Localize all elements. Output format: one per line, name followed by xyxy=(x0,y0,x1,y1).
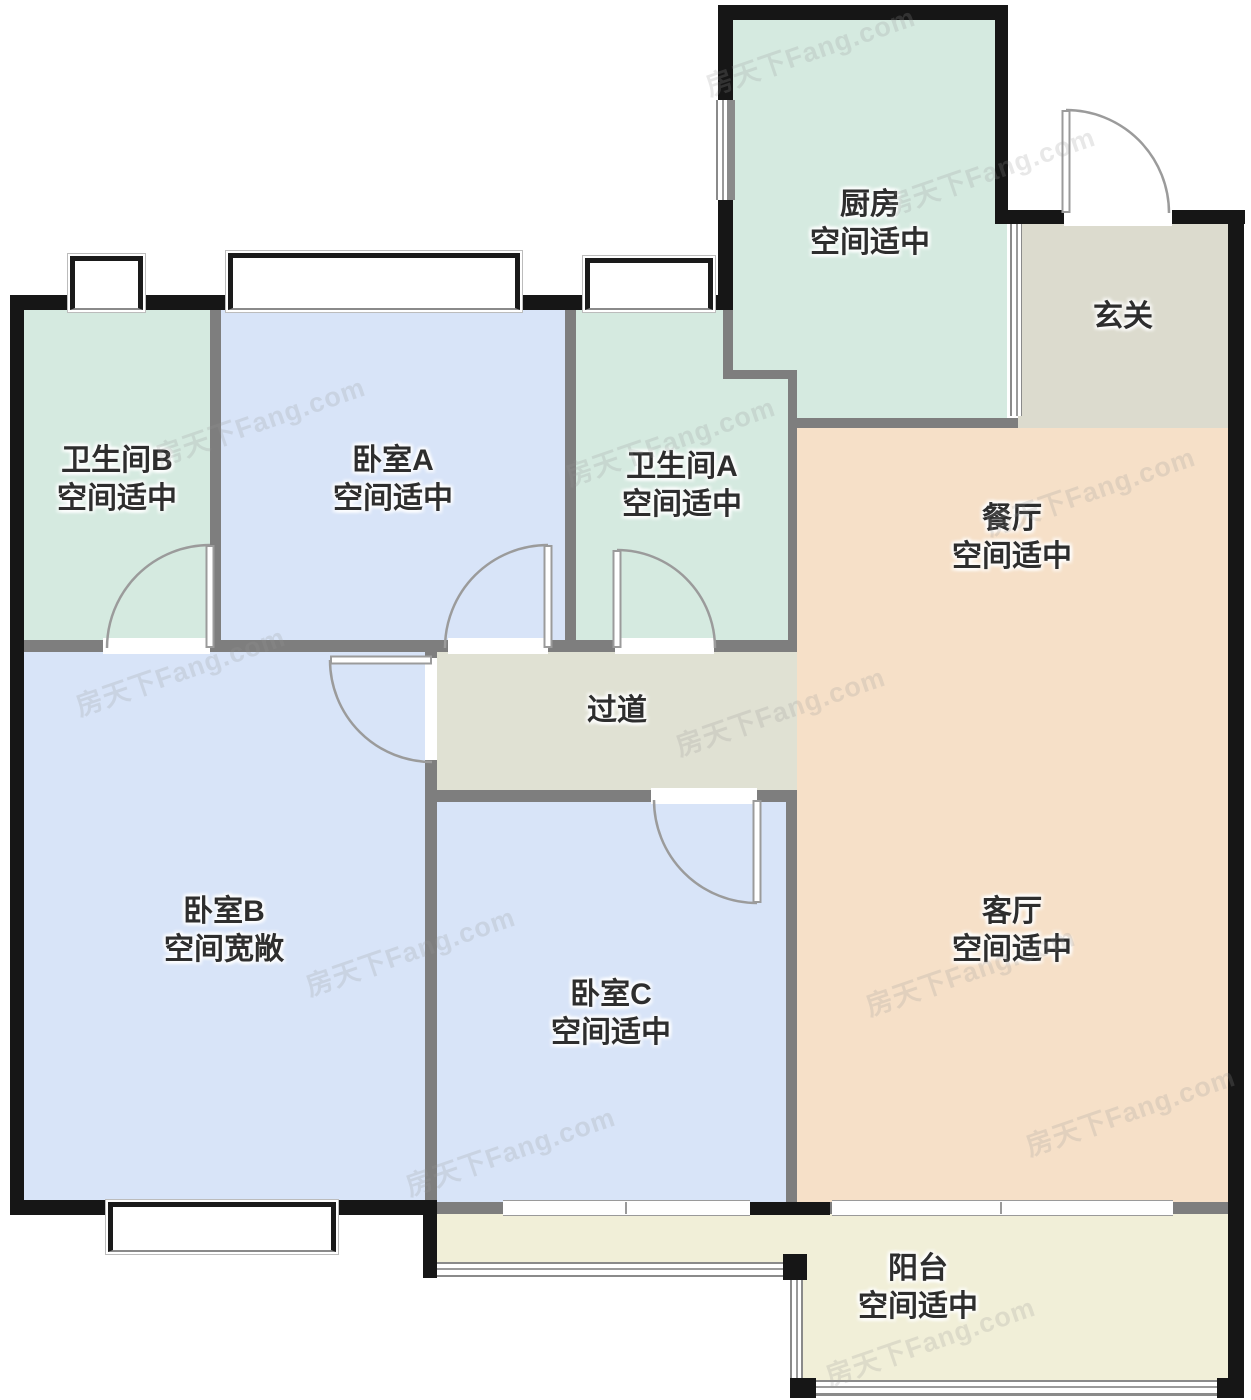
room-name: 卫生间B xyxy=(57,442,177,480)
window-bay-icon xyxy=(108,1202,336,1252)
outer-wall xyxy=(750,1202,830,1215)
room-note: 空间适中 xyxy=(57,480,177,518)
room-label-dining: 餐厅 空间适中 xyxy=(952,500,1072,576)
window-bay-icon xyxy=(228,253,520,310)
sliding-door-opening xyxy=(832,1200,1173,1216)
room-note: 空间适中 xyxy=(858,1288,978,1326)
room-note: 空间适中 xyxy=(551,1014,671,1052)
room-note: 空间适中 xyxy=(622,486,742,524)
balcony-window-icon xyxy=(790,1277,803,1380)
room-label-hallway: 过道 xyxy=(587,692,647,730)
slider-track-tick xyxy=(1000,1202,1002,1214)
outer-wall xyxy=(10,295,24,1215)
room-label-bed-b: 卧室B 空间宽敞 xyxy=(164,893,284,969)
room-note: 空间适中 xyxy=(952,931,1072,969)
partition-wall xyxy=(565,300,576,645)
wall-post xyxy=(790,1378,816,1398)
room-name: 客厅 xyxy=(952,893,1072,931)
window-bay-icon xyxy=(585,258,713,310)
room-note: 空间适中 xyxy=(333,480,453,518)
outer-wall xyxy=(1228,210,1244,1398)
room-name: 卫生间A xyxy=(622,448,742,486)
entry-door-opening xyxy=(1064,208,1172,226)
room-name: 阳台 xyxy=(858,1250,978,1288)
room-balcony-strip xyxy=(437,1214,790,1264)
room-label-kitchen: 厨房 空间适中 xyxy=(810,186,930,262)
slider-track-tick xyxy=(625,1202,627,1214)
outer-wall xyxy=(423,1200,437,1278)
balcony-window-icon xyxy=(803,1380,1228,1396)
wall-post xyxy=(783,1254,807,1280)
partition-wall xyxy=(788,374,797,652)
door-opening-bed-a xyxy=(448,638,548,654)
window-kitchen-icon xyxy=(716,100,735,200)
room-name: 厨房 xyxy=(810,186,930,224)
door-opening-bed-c xyxy=(651,788,757,804)
room-name: 餐厅 xyxy=(952,500,1072,538)
outer-wall xyxy=(718,5,1008,20)
room-label-bed-c: 卧室C 空间适中 xyxy=(551,976,671,1052)
partition-wall xyxy=(797,418,1018,428)
room-label-bath-a: 卫生间A 空间适中 xyxy=(622,448,742,524)
door-opening-bed-b xyxy=(425,658,437,760)
room-note: 空间宽敞 xyxy=(164,931,284,969)
outer-wall xyxy=(995,5,1008,224)
room-name: 卧室B xyxy=(164,893,284,931)
room-label-entry: 玄关 xyxy=(1093,298,1153,336)
window-partition-icon xyxy=(1010,224,1022,416)
room-name: 卧室A xyxy=(333,442,453,480)
room-balcony xyxy=(790,1214,1228,1380)
partition-wall xyxy=(786,802,797,1202)
partition-wall xyxy=(723,300,733,374)
window-bay-icon xyxy=(70,256,143,310)
balcony-window-icon xyxy=(437,1262,805,1277)
wall-post xyxy=(1217,1378,1244,1398)
room-label-living: 客厅 空间适中 xyxy=(952,893,1072,969)
door-arc-entry xyxy=(1066,110,1169,213)
partition-wall xyxy=(723,370,797,379)
room-note: 空间适中 xyxy=(810,224,930,262)
room-label-bed-a: 卧室A 空间适中 xyxy=(333,442,453,518)
door-opening-bath-b xyxy=(103,638,210,654)
door-opening-bath-a xyxy=(615,638,714,654)
room-label-balcony: 阳台 空间适中 xyxy=(858,1250,978,1326)
partition-wall xyxy=(210,300,221,645)
room-note: 空间适中 xyxy=(952,538,1072,576)
room-name: 玄关 xyxy=(1093,298,1153,336)
room-name: 过道 xyxy=(587,692,647,730)
floor-plan: 厨房 空间适中 玄关 卫生间B 空间适中 卧室A 空间适中 卫生间A 空间适中 … xyxy=(0,0,1251,1400)
room-name: 卧室C xyxy=(551,976,671,1014)
room-label-bath-b: 卫生间B 空间适中 xyxy=(57,442,177,518)
